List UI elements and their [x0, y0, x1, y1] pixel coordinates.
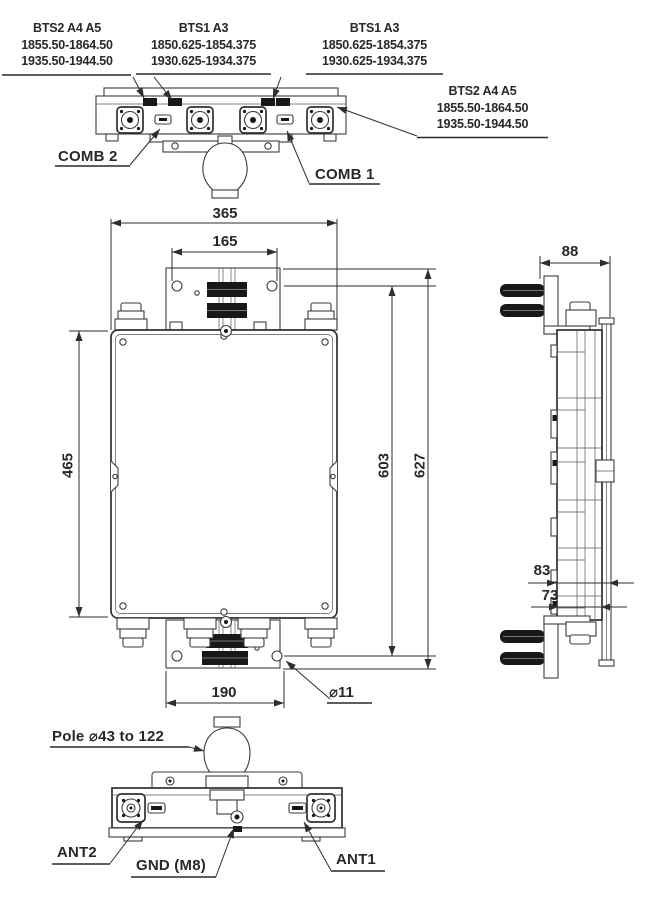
unit-body [111, 330, 337, 618]
comb2-label: COMB 2 [58, 148, 118, 165]
ant2-label: ANT2 [57, 844, 97, 861]
dim-overall-height: 627 [412, 448, 429, 484]
bts-port-icon [276, 98, 290, 106]
freq-label-bts1-mid: BTS1 A3 1850.625-1854.375 1930.625-1934.… [136, 20, 271, 70]
mount-hole [172, 281, 182, 291]
rf-connector-icon [307, 107, 333, 133]
mount-hole-dia11 [272, 651, 282, 661]
freq-label-line: BTS1 A3 [136, 20, 271, 37]
ant1-connector-icon [307, 794, 335, 822]
ant2-connector-icon [117, 794, 145, 822]
freq-label-line: 1930.625-1934.375 [306, 53, 443, 70]
freq-label-line: 1930.625-1934.375 [136, 53, 271, 70]
dim-overall-width: 365 [207, 205, 243, 222]
mount-hole [172, 651, 182, 661]
freq-label-line: 1935.50-1944.50 [417, 116, 548, 133]
freq-label-line: 1855.50-1864.50 [2, 37, 132, 54]
freq-label-line: BTS2 A4 A5 [2, 20, 132, 37]
rf-connector-icon [187, 107, 213, 133]
freq-label-line: 1935.50-1944.50 [2, 53, 132, 70]
dim-body-height: 465 [60, 448, 77, 484]
comb1-label: COMB 1 [315, 166, 375, 183]
dim-top-hole-spacing: 165 [207, 233, 243, 250]
dim-front-offset: 73 [535, 587, 565, 604]
bts-port-icon [143, 98, 157, 106]
freq-label-line: 1850.625-1854.375 [306, 37, 443, 54]
freq-label-line: BTS2 A4 A5 [417, 83, 548, 100]
freq-label-line: 1855.50-1864.50 [417, 100, 548, 117]
gnd-label: GND (M8) [136, 857, 206, 874]
front-view [111, 268, 337, 668]
freq-label-line: BTS1 A3 [306, 20, 443, 37]
dim-mount-hole-span: 603 [376, 448, 393, 484]
drawing-linework [0, 0, 652, 900]
pole-clamp-note: Pole ⌀43 to 122 [52, 727, 164, 745]
dim-depth: 88 [552, 243, 588, 260]
mount-hole [267, 281, 277, 291]
freq-label-bts2-left: BTS2 A4 A5 1855.50-1864.50 1935.50-1944.… [2, 20, 132, 70]
dim-hole-diameter: ⌀11 [329, 683, 354, 701]
pole-clamp-loop [203, 143, 247, 190]
technical-drawing-canvas: BTS2 A4 A5 1855.50-1864.50 1935.50-1944.… [0, 0, 652, 900]
freq-label-bts2-right: BTS2 A4 A5 1855.50-1864.50 1935.50-1944.… [417, 83, 548, 133]
bts-port-icon [168, 98, 182, 106]
pole-clamp-loop [204, 728, 250, 778]
dim-rear-offset: 83 [527, 562, 557, 579]
rf-connector-icon [240, 107, 266, 133]
ant1-label: ANT1 [336, 851, 376, 868]
rf-connector-icon [117, 107, 143, 133]
freq-label-bts1-right: BTS1 A3 1850.625-1854.375 1930.625-1934.… [306, 20, 443, 70]
freq-label-line: 1850.625-1854.375 [136, 37, 271, 54]
bts-port-icon [261, 98, 275, 106]
dim-bottom-hole-spacing: 190 [206, 684, 242, 701]
side-view [500, 276, 614, 678]
